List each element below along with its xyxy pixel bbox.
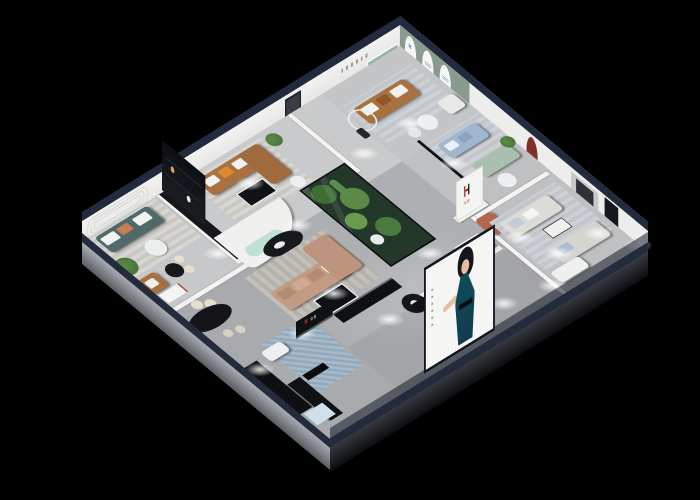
poster-caption (431, 283, 433, 326)
brand-logo-characters: 华煦 (464, 198, 470, 206)
spotlight (374, 312, 406, 327)
spotlight (318, 286, 350, 301)
spotlight (348, 146, 380, 161)
spotlight (504, 230, 536, 245)
spotlight (394, 116, 426, 131)
spotlight (202, 246, 234, 261)
spotlight (282, 218, 314, 233)
spotlight (234, 176, 266, 191)
spotlight (582, 226, 614, 241)
brand-mark-blue: H (409, 43, 412, 51)
spotlight (542, 246, 574, 261)
spotlight (438, 156, 470, 171)
showroom-render: H (0, 0, 700, 500)
